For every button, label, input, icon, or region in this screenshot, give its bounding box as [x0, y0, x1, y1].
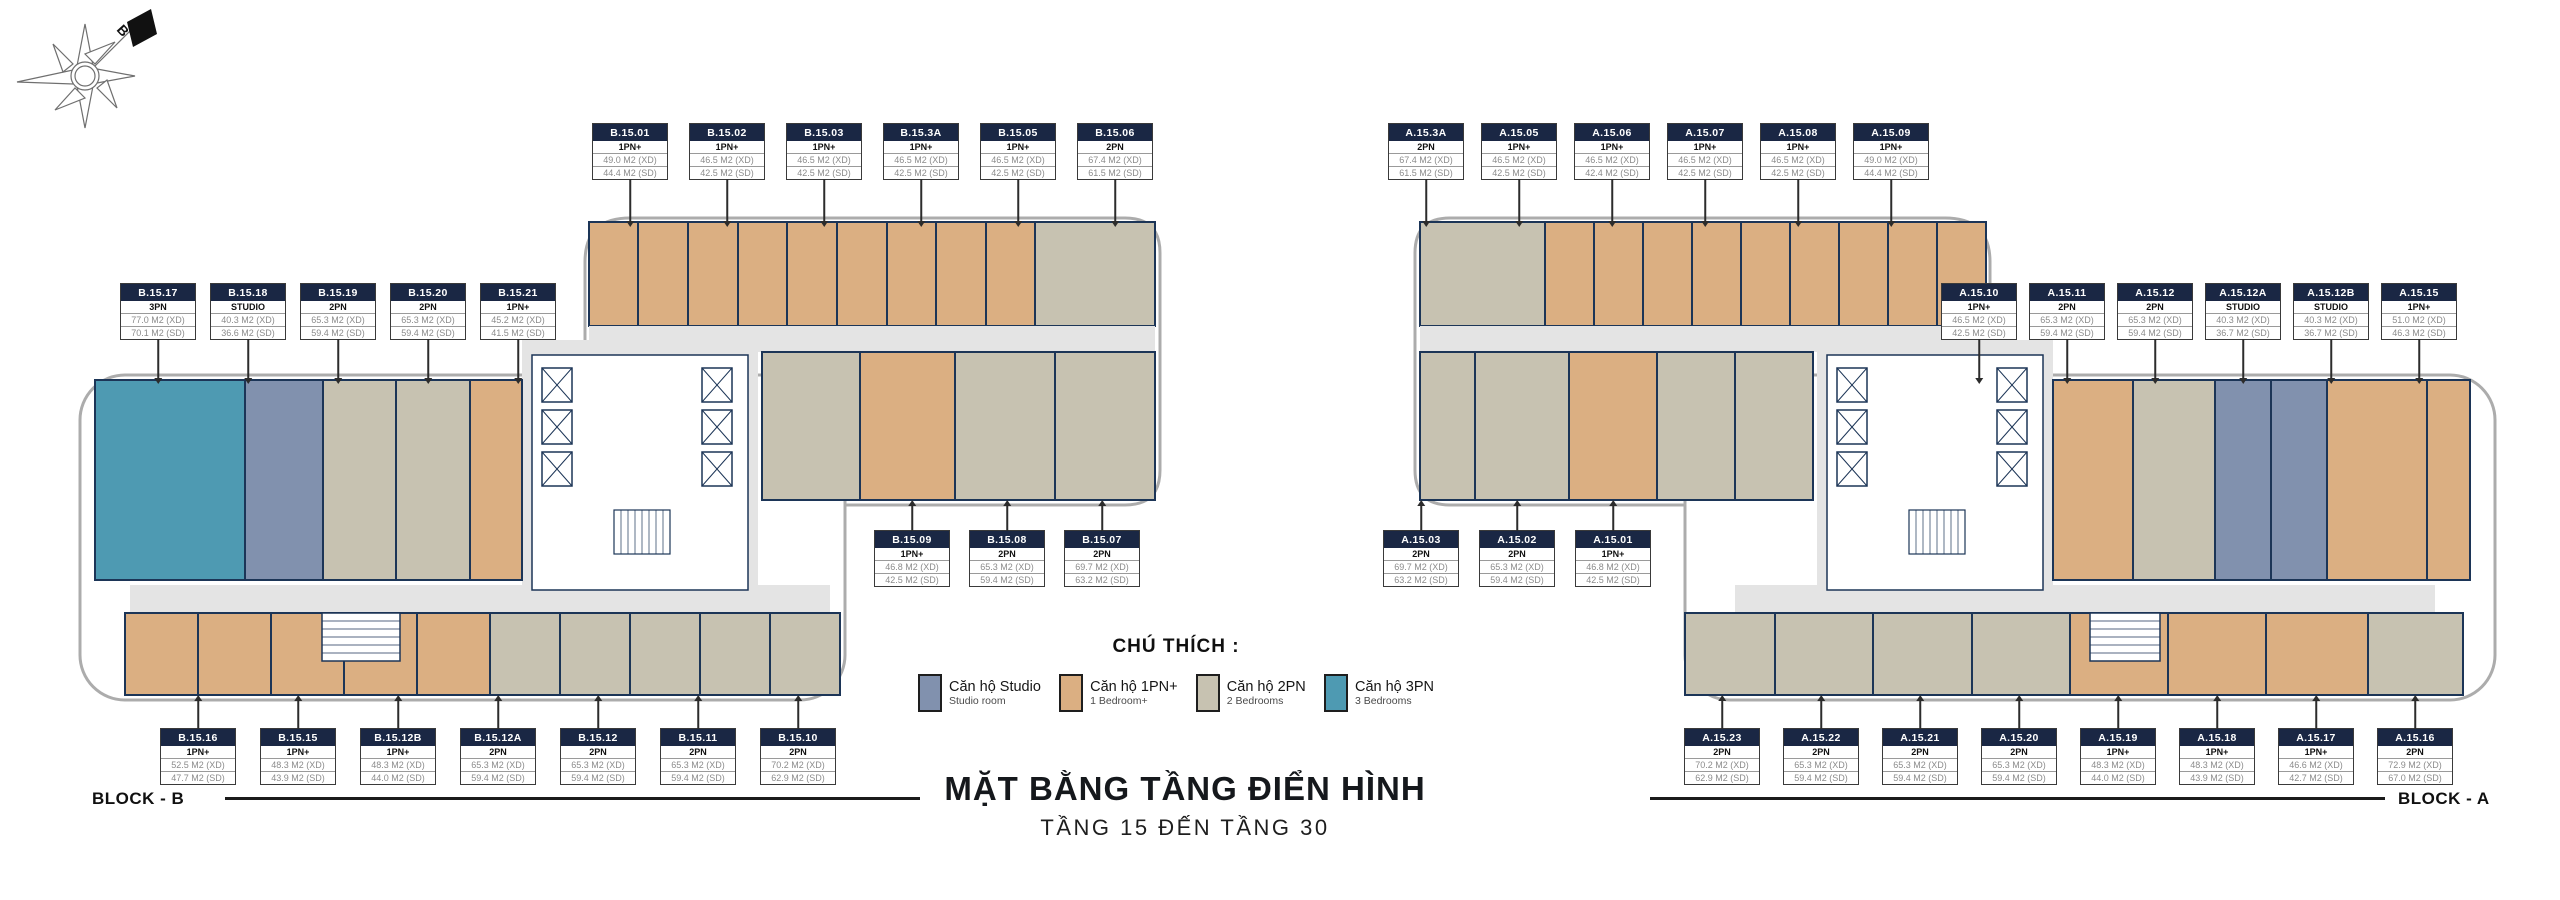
unit-area-xd: 46.5 M2 (XD)	[1942, 313, 2016, 326]
unit-area-sd: 59.4 M2 (SD)	[1883, 771, 1957, 784]
unit-id: B.15.05	[981, 124, 1055, 141]
unit-id: A.15.20	[1982, 729, 2056, 746]
unit-area-sd: 47.7 M2 (SD)	[161, 771, 235, 784]
legend-item: Căn hộ 2PN 2 Bedrooms	[1196, 674, 1306, 712]
block-a-upper-corridor	[1420, 326, 1986, 352]
callout-stem	[427, 339, 429, 378]
unit-area-sd: 59.4 M2 (SD)	[1784, 771, 1858, 784]
unit-callout: A.15.12A STUDIO 40.3 M2 (XD) 36.7 M2 (SD…	[2205, 283, 2281, 340]
unit-callout: A.15.02 2PN 65.3 M2 (XD) 59.4 M2 (SD)	[1479, 530, 1555, 587]
unit-type: 2PN	[1685, 746, 1759, 758]
unit-type: 2PN	[970, 548, 1044, 560]
block-b-upper-corridor	[589, 326, 1155, 352]
unit-callout: A.15.20 2PN 65.3 M2 (XD) 59.4 M2 (SD)	[1981, 728, 2057, 785]
unit-area-sd: 36.7 M2 (SD)	[2206, 326, 2280, 339]
unit-id: B.15.11	[661, 729, 735, 746]
unit-id: A.15.23	[1685, 729, 1759, 746]
unit-callout: A.15.06 1PN+ 46.5 M2 (XD) 42.4 M2 (SD)	[1574, 123, 1650, 180]
unit-area-sd: 36.6 M2 (SD)	[211, 326, 285, 339]
unit-id: B.15.18	[211, 284, 285, 301]
unit-type: 1PN+	[2180, 746, 2254, 758]
unit-id: A.15.3A	[1389, 124, 1463, 141]
unit-callout: A.15.12 2PN 65.3 M2 (XD) 59.4 M2 (SD)	[2117, 283, 2193, 340]
unit-area-sd: 59.4 M2 (SD)	[2118, 326, 2192, 339]
unit-callout: A.15.22 2PN 65.3 M2 (XD) 59.4 M2 (SD)	[1783, 728, 1859, 785]
unit-area-sd: 42.5 M2 (SD)	[787, 166, 861, 179]
unit-callout: B.15.11 2PN 65.3 M2 (XD) 59.4 M2 (SD)	[660, 728, 736, 785]
unit-area-sd: 43.9 M2 (SD)	[2180, 771, 2254, 784]
unit-callout: A.15.11 2PN 65.3 M2 (XD) 59.4 M2 (SD)	[2029, 283, 2105, 340]
unit-type: 1PN+	[1482, 141, 1556, 153]
unit-area-xd: 67.4 M2 (XD)	[1078, 153, 1152, 166]
legend-title: CHÚ THÍCH :	[918, 636, 1434, 658]
unit-id: B.15.02	[690, 124, 764, 141]
callout-stem	[1721, 701, 1723, 729]
unit-area-sd: 59.4 M2 (SD)	[301, 326, 375, 339]
callout-stem	[597, 701, 599, 729]
unit-type: 1PN+	[690, 141, 764, 153]
unit-area-sd: 44.0 M2 (SD)	[2081, 771, 2155, 784]
callout-stem	[1797, 179, 1799, 221]
callout-stem	[1420, 506, 1422, 531]
unit-callout: B.15.09 1PN+ 46.8 M2 (XD) 42.5 M2 (SD)	[874, 530, 950, 587]
unit-area-sd: 63.2 M2 (SD)	[1384, 573, 1458, 586]
unit-type: 2PN	[1384, 548, 1458, 560]
unit-id: A.15.01	[1576, 531, 1650, 548]
unit-type: 1PN+	[1942, 301, 2016, 313]
unit-area-sd: 44.4 M2 (SD)	[593, 166, 667, 179]
callout-stem	[2418, 339, 2420, 378]
unit-id: B.15.12A	[461, 729, 535, 746]
unit-callout: A.15.16 2PN 72.9 M2 (XD) 67.0 M2 (SD)	[2377, 728, 2453, 785]
unit-area-sd: 67.0 M2 (SD)	[2378, 771, 2452, 784]
unit-area-xd: 46.8 M2 (XD)	[1576, 560, 1650, 573]
legend-item: Căn hộ 1PN+ 1 Bedroom+	[1059, 674, 1177, 712]
callout-stem	[2018, 701, 2020, 729]
unit-id: B.15.3A	[884, 124, 958, 141]
block-a-mid-callouts: A.15.03 2PN 69.7 M2 (XD) 63.2 M2 (SD) A.…	[1383, 530, 1651, 587]
unit-type: 2PN	[2030, 301, 2104, 313]
unit-id: B.15.03	[787, 124, 861, 141]
unit-area-sd: 42.4 M2 (SD)	[1575, 166, 1649, 179]
unit-callout: A.15.09 1PN+ 49.0 M2 (XD) 44.4 M2 (SD)	[1853, 123, 1929, 180]
callout-stem	[1612, 506, 1614, 531]
block-b-elevator-core	[532, 355, 748, 590]
legend: CHÚ THÍCH : Căn hộ Studio Studio room Că…	[918, 636, 1434, 712]
callout-stem	[1425, 179, 1427, 221]
unit-area-sd: 43.9 M2 (SD)	[261, 771, 335, 784]
unit-callout: B.15.19 2PN 65.3 M2 (XD) 59.4 M2 (SD)	[300, 283, 376, 340]
callout-stem	[1820, 701, 1822, 729]
unit-id: A.15.19	[2081, 729, 2155, 746]
unit-callout: A.15.12B STUDIO 40.3 M2 (XD) 36.7 M2 (SD…	[2293, 283, 2369, 340]
unit-area-sd: 62.9 M2 (SD)	[761, 771, 835, 784]
unit-id: A.15.08	[1761, 124, 1835, 141]
callout-stem	[1919, 701, 1921, 729]
callout-stem	[2066, 339, 2068, 378]
unit-callout: A.15.18 1PN+ 48.3 M2 (XD) 43.9 M2 (SD)	[2179, 728, 2255, 785]
compass-rose-icon: B	[15, 8, 165, 133]
unit-id: B.15.08	[970, 531, 1044, 548]
unit-area-xd: 52.5 M2 (XD)	[161, 758, 235, 771]
unit-area-xd: 49.0 M2 (XD)	[593, 153, 667, 166]
unit-callout: B.15.07 2PN 69.7 M2 (XD) 63.2 M2 (SD)	[1064, 530, 1140, 587]
callout-stem	[1518, 179, 1520, 221]
unit-area-xd: 46.5 M2 (XD)	[884, 153, 958, 166]
unit-type: 1PN+	[1576, 548, 1650, 560]
legend-color-swatch	[918, 674, 942, 712]
unit-type: 2PN	[1078, 141, 1152, 153]
unit-id: B.15.19	[301, 284, 375, 301]
unit-area-xd: 77.0 M2 (XD)	[121, 313, 195, 326]
unit-callout: A.15.15 1PN+ 51.0 M2 (XD) 46.3 M2 (SD)	[2381, 283, 2457, 340]
unit-area-sd: 62.9 M2 (SD)	[1685, 771, 1759, 784]
legend-color-swatch	[1059, 674, 1083, 712]
unit-id: A.15.16	[2378, 729, 2452, 746]
unit-type: 2PN	[1883, 746, 1957, 758]
legend-color-swatch	[1324, 674, 1348, 712]
callout-stem	[2154, 339, 2156, 378]
unit-type: 2PN	[761, 746, 835, 758]
unit-area-xd: 46.8 M2 (XD)	[875, 560, 949, 573]
callout-stem	[517, 339, 519, 378]
callout-stem	[1114, 179, 1116, 221]
unit-callout: B.15.05 1PN+ 46.5 M2 (XD) 42.5 M2 (SD)	[980, 123, 1056, 180]
unit-callout: B.15.17 3PN 77.0 M2 (XD) 70.1 M2 (SD)	[120, 283, 196, 340]
unit-area-sd: 42.5 M2 (SD)	[875, 573, 949, 586]
callout-stem	[2117, 701, 2119, 729]
unit-area-xd: 69.7 M2 (XD)	[1384, 560, 1458, 573]
callout-stem	[337, 339, 339, 378]
block-b-bottom-callouts: B.15.16 1PN+ 52.5 M2 (XD) 47.7 M2 (SD) B…	[160, 728, 836, 785]
legend-item-name: Căn hộ Studio	[949, 679, 1041, 696]
unit-area-sd: 42.5 M2 (SD)	[981, 166, 1055, 179]
unit-callout: A.15.05 1PN+ 46.5 M2 (XD) 42.5 M2 (SD)	[1481, 123, 1557, 180]
unit-area-xd: 40.3 M2 (XD)	[211, 313, 285, 326]
unit-area-sd: 59.4 M2 (SD)	[1982, 771, 2056, 784]
unit-callout: A.15.17 1PN+ 46.6 M2 (XD) 42.7 M2 (SD)	[2278, 728, 2354, 785]
unit-area-xd: 48.3 M2 (XD)	[2081, 758, 2155, 771]
block-b-mid-callouts: B.15.09 1PN+ 46.8 M2 (XD) 42.5 M2 (SD) B…	[874, 530, 1140, 587]
callout-stem	[1978, 339, 1980, 378]
unit-area-sd: 44.4 M2 (SD)	[1854, 166, 1928, 179]
unit-area-xd: 46.5 M2 (XD)	[787, 153, 861, 166]
unit-area-xd: 40.3 M2 (XD)	[2206, 313, 2280, 326]
unit-id: A.15.06	[1575, 124, 1649, 141]
unit-callout: B.15.08 2PN 65.3 M2 (XD) 59.4 M2 (SD)	[969, 530, 1045, 587]
unit-callout: B.15.01 1PN+ 49.0 M2 (XD) 44.4 M2 (SD)	[592, 123, 668, 180]
unit-area-xd: 69.7 M2 (XD)	[1065, 560, 1139, 573]
unit-id: B.15.09	[875, 531, 949, 548]
callout-stem	[629, 179, 631, 221]
block-a-underline	[1650, 797, 2385, 800]
unit-callout: B.15.20 2PN 65.3 M2 (XD) 59.4 M2 (SD)	[390, 283, 466, 340]
unit-area-sd: 42.5 M2 (SD)	[1482, 166, 1556, 179]
callout-stem	[697, 701, 699, 729]
unit-callout: A.15.03 2PN 69.7 M2 (XD) 63.2 M2 (SD)	[1383, 530, 1459, 587]
unit-id: B.15.17	[121, 284, 195, 301]
unit-id: A.15.15	[2382, 284, 2456, 301]
unit-type: 1PN+	[1854, 141, 1928, 153]
unit-area-sd: 59.4 M2 (SD)	[970, 573, 1044, 586]
unit-id: A.15.07	[1668, 124, 1742, 141]
callout-stem	[197, 701, 199, 729]
legend-item-subtext: 1 Bedroom+	[1090, 695, 1177, 707]
unit-id: A.15.05	[1482, 124, 1556, 141]
unit-area-xd: 65.3 M2 (XD)	[1982, 758, 2056, 771]
unit-area-sd: 42.7 M2 (SD)	[2279, 771, 2353, 784]
unit-type: 1PN+	[481, 301, 555, 313]
unit-callout: B.15.12A 2PN 65.3 M2 (XD) 59.4 M2 (SD)	[460, 728, 536, 785]
unit-area-sd: 63.2 M2 (SD)	[1065, 573, 1139, 586]
unit-id: B.15.20	[391, 284, 465, 301]
unit-type: 2PN	[1982, 746, 2056, 758]
unit-id: A.15.22	[1784, 729, 1858, 746]
unit-type: STUDIO	[2206, 301, 2280, 313]
unit-area-xd: 65.3 M2 (XD)	[1883, 758, 1957, 771]
unit-callout: B.15.03 1PN+ 46.5 M2 (XD) 42.5 M2 (SD)	[786, 123, 862, 180]
unit-area-xd: 70.2 M2 (XD)	[761, 758, 835, 771]
unit-area-xd: 65.3 M2 (XD)	[2030, 313, 2104, 326]
legend-item-name: Căn hộ 3PN	[1355, 679, 1434, 696]
unit-type: 2PN	[301, 301, 375, 313]
unit-type: 1PN+	[1668, 141, 1742, 153]
unit-area-sd: 59.4 M2 (SD)	[461, 771, 535, 784]
callout-stem	[911, 506, 913, 531]
unit-id: A.15.02	[1480, 531, 1554, 548]
block-b-underline	[225, 797, 920, 800]
unit-area-xd: 46.6 M2 (XD)	[2279, 758, 2353, 771]
unit-area-xd: 65.3 M2 (XD)	[1480, 560, 1554, 573]
unit-type: 1PN+	[1761, 141, 1835, 153]
unit-area-sd: 41.5 M2 (SD)	[481, 326, 555, 339]
unit-area-sd: 42.5 M2 (SD)	[884, 166, 958, 179]
unit-area-sd: 36.7 M2 (SD)	[2294, 326, 2368, 339]
callout-stem	[1101, 506, 1103, 531]
legend-item: Căn hộ 3PN 3 Bedrooms	[1324, 674, 1434, 712]
unit-callout: B.15.12 2PN 65.3 M2 (XD) 59.4 M2 (SD)	[560, 728, 636, 785]
unit-area-xd: 45.2 M2 (XD)	[481, 313, 555, 326]
unit-callout: B.15.15 1PN+ 48.3 M2 (XD) 43.9 M2 (SD)	[260, 728, 336, 785]
unit-type: 2PN	[2118, 301, 2192, 313]
unit-area-xd: 46.5 M2 (XD)	[690, 153, 764, 166]
unit-type: 2PN	[461, 746, 535, 758]
unit-callout: B.15.06 2PN 67.4 M2 (XD) 61.5 M2 (SD)	[1077, 123, 1153, 180]
unit-area-xd: 46.5 M2 (XD)	[981, 153, 1055, 166]
unit-area-sd: 59.4 M2 (SD)	[1480, 573, 1554, 586]
block-a-bottom-callouts: A.15.23 2PN 70.2 M2 (XD) 62.9 M2 (SD) A.…	[1684, 728, 2453, 785]
unit-id: B.15.12	[561, 729, 635, 746]
unit-type: 1PN+	[981, 141, 1055, 153]
unit-callout: A.15.23 2PN 70.2 M2 (XD) 62.9 M2 (SD)	[1684, 728, 1760, 785]
unit-callout: B.15.16 1PN+ 52.5 M2 (XD) 47.7 M2 (SD)	[160, 728, 236, 785]
unit-type: STUDIO	[2294, 301, 2368, 313]
unit-callout: B.15.3A 1PN+ 46.5 M2 (XD) 42.5 M2 (SD)	[883, 123, 959, 180]
unit-callout: A.15.10 1PN+ 46.5 M2 (XD) 42.5 M2 (SD)	[1941, 283, 2017, 340]
unit-callout: A.15.19 1PN+ 48.3 M2 (XD) 44.0 M2 (SD)	[2080, 728, 2156, 785]
unit-area-xd: 65.3 M2 (XD)	[301, 313, 375, 326]
unit-area-xd: 70.2 M2 (XD)	[1685, 758, 1759, 771]
callout-stem	[920, 179, 922, 221]
page-subtitle: TẦNG 15 ĐẾN TẦNG 30	[935, 815, 1435, 841]
unit-type: STUDIO	[211, 301, 285, 313]
unit-type: 1PN+	[884, 141, 958, 153]
callout-stem	[797, 701, 799, 729]
unit-callout: B.15.12B 1PN+ 48.3 M2 (XD) 44.0 M2 (SD)	[360, 728, 436, 785]
unit-area-xd: 72.9 M2 (XD)	[2378, 758, 2452, 771]
unit-id: B.15.01	[593, 124, 667, 141]
unit-type: 2PN	[561, 746, 635, 758]
legend-item-name: Căn hộ 2PN	[1227, 679, 1306, 696]
unit-area-xd: 48.3 M2 (XD)	[361, 758, 435, 771]
unit-callout: A.15.08 1PN+ 46.5 M2 (XD) 42.5 M2 (SD)	[1760, 123, 1836, 180]
unit-area-xd: 65.3 M2 (XD)	[561, 758, 635, 771]
unit-area-sd: 42.5 M2 (SD)	[690, 166, 764, 179]
unit-area-xd: 46.5 M2 (XD)	[1482, 153, 1556, 166]
legend-item-name: Căn hộ 1PN+	[1090, 679, 1177, 696]
unit-id: A.15.21	[1883, 729, 1957, 746]
unit-id: A.15.12	[2118, 284, 2192, 301]
unit-area-xd: 65.3 M2 (XD)	[461, 758, 535, 771]
unit-area-sd: 70.1 M2 (SD)	[121, 326, 195, 339]
legend-item: Căn hộ Studio Studio room	[918, 674, 1041, 712]
page-title: MẶT BẰNG TẦNG ĐIỂN HÌNH	[935, 770, 1435, 808]
unit-area-sd: 42.5 M2 (SD)	[1942, 326, 2016, 339]
unit-area-xd: 51.0 M2 (XD)	[2382, 313, 2456, 326]
unit-area-sd: 46.3 M2 (SD)	[2382, 326, 2456, 339]
unit-callout: A.15.3A 2PN 67.4 M2 (XD) 61.5 M2 (SD)	[1388, 123, 1464, 180]
unit-area-xd: 40.3 M2 (XD)	[2294, 313, 2368, 326]
unit-area-xd: 48.3 M2 (XD)	[261, 758, 335, 771]
block-b-left-callouts: B.15.17 3PN 77.0 M2 (XD) 70.1 M2 (SD) B.…	[120, 283, 556, 340]
unit-area-xd: 65.3 M2 (XD)	[661, 758, 735, 771]
callout-stem	[157, 339, 159, 378]
callout-stem	[2242, 339, 2244, 378]
unit-area-xd: 49.0 M2 (XD)	[1854, 153, 1928, 166]
callout-stem	[2414, 701, 2416, 729]
unit-id: B.15.21	[481, 284, 555, 301]
callout-stem	[297, 701, 299, 729]
block-b-label: BLOCK - B	[92, 789, 184, 809]
unit-id: B.15.10	[761, 729, 835, 746]
unit-callout: A.15.01 1PN+ 46.8 M2 (XD) 42.5 M2 (SD)	[1575, 530, 1651, 587]
callout-stem	[247, 339, 249, 378]
unit-id: A.15.03	[1384, 531, 1458, 548]
callout-stem	[2216, 701, 2218, 729]
unit-type: 2PN	[1389, 141, 1463, 153]
unit-callout: A.15.21 2PN 65.3 M2 (XD) 59.4 M2 (SD)	[1882, 728, 1958, 785]
unit-area-sd: 61.5 M2 (SD)	[1389, 166, 1463, 179]
unit-type: 1PN+	[2081, 746, 2155, 758]
unit-type: 1PN+	[361, 746, 435, 758]
unit-callout: B.15.10 2PN 70.2 M2 (XD) 62.9 M2 (SD)	[760, 728, 836, 785]
unit-area-sd: 59.4 M2 (SD)	[2030, 326, 2104, 339]
callout-stem	[1704, 179, 1706, 221]
unit-type: 1PN+	[2382, 301, 2456, 313]
unit-id: A.15.17	[2279, 729, 2353, 746]
callout-stem	[1017, 179, 1019, 221]
unit-callout: B.15.18 STUDIO 40.3 M2 (XD) 36.6 M2 (SD)	[210, 283, 286, 340]
floor-plan-canvas: B	[0, 0, 2560, 900]
unit-type: 1PN+	[787, 141, 861, 153]
unit-callout: B.15.21 1PN+ 45.2 M2 (XD) 41.5 M2 (SD)	[480, 283, 556, 340]
unit-type: 2PN	[1065, 548, 1139, 560]
unit-area-sd: 61.5 M2 (SD)	[1078, 166, 1152, 179]
callout-stem	[2315, 701, 2317, 729]
unit-type: 1PN+	[261, 746, 335, 758]
unit-area-xd: 67.4 M2 (XD)	[1389, 153, 1463, 166]
unit-type: 1PN+	[593, 141, 667, 153]
unit-callout: B.15.02 1PN+ 46.5 M2 (XD) 42.5 M2 (SD)	[689, 123, 765, 180]
unit-area-xd: 65.3 M2 (XD)	[1784, 758, 1858, 771]
legend-item-subtext: 2 Bedrooms	[1227, 695, 1306, 707]
callout-stem	[397, 701, 399, 729]
unit-area-xd: 48.3 M2 (XD)	[2180, 758, 2254, 771]
unit-area-sd: 59.4 M2 (SD)	[561, 771, 635, 784]
block-a-elevator-core	[1827, 355, 2043, 590]
block-a-label: BLOCK - A	[2398, 789, 2490, 809]
unit-type: 1PN+	[161, 746, 235, 758]
unit-area-sd: 42.5 M2 (SD)	[1668, 166, 1742, 179]
unit-type: 2PN	[1784, 746, 1858, 758]
unit-type: 1PN+	[1575, 141, 1649, 153]
unit-id: A.15.12B	[2294, 284, 2368, 301]
unit-id: A.15.09	[1854, 124, 1928, 141]
legend-item-subtext: 3 Bedrooms	[1355, 695, 1434, 707]
callout-stem	[497, 701, 499, 729]
unit-area-xd: 65.3 M2 (XD)	[2118, 313, 2192, 326]
legend-item-subtext: Studio room	[949, 695, 1041, 707]
callout-stem	[1611, 179, 1613, 221]
unit-id: B.15.16	[161, 729, 235, 746]
block-a-right-callouts: A.15.10 1PN+ 46.5 M2 (XD) 42.5 M2 (SD) A…	[1941, 283, 2457, 340]
unit-callout: A.15.07 1PN+ 46.5 M2 (XD) 42.5 M2 (SD)	[1667, 123, 1743, 180]
unit-id: A.15.11	[2030, 284, 2104, 301]
unit-type: 2PN	[661, 746, 735, 758]
unit-type: 3PN	[121, 301, 195, 313]
block-a-top-callouts: A.15.3A 2PN 67.4 M2 (XD) 61.5 M2 (SD) A.…	[1388, 123, 1929, 180]
legend-items: Căn hộ Studio Studio room Căn hộ 1PN+ 1 …	[918, 674, 1434, 712]
unit-area-xd: 46.5 M2 (XD)	[1761, 153, 1835, 166]
block-b-top-callouts: B.15.01 1PN+ 49.0 M2 (XD) 44.4 M2 (SD) B…	[592, 123, 1153, 180]
unit-id: A.15.18	[2180, 729, 2254, 746]
callout-stem	[1890, 179, 1892, 221]
legend-color-swatch	[1196, 674, 1220, 712]
unit-type: 2PN	[1480, 548, 1554, 560]
unit-id: B.15.06	[1078, 124, 1152, 141]
unit-type: 1PN+	[2279, 746, 2353, 758]
unit-area-sd: 59.4 M2 (SD)	[391, 326, 465, 339]
callout-stem	[726, 179, 728, 221]
unit-id: B.15.12B	[361, 729, 435, 746]
callout-stem	[1516, 506, 1518, 531]
unit-type: 1PN+	[875, 548, 949, 560]
unit-area-xd: 46.5 M2 (XD)	[1575, 153, 1649, 166]
unit-id: A.15.12A	[2206, 284, 2280, 301]
unit-type: 2PN	[2378, 746, 2452, 758]
callout-stem	[1006, 506, 1008, 531]
unit-area-xd: 65.3 M2 (XD)	[970, 560, 1044, 573]
unit-area-sd: 42.5 M2 (SD)	[1576, 573, 1650, 586]
unit-area-sd: 42.5 M2 (SD)	[1761, 166, 1835, 179]
page-title-block: MẶT BẰNG TẦNG ĐIỂN HÌNH TẦNG 15 ĐẾN TẦNG…	[935, 770, 1435, 841]
block-a-floorplan	[1385, 200, 2505, 720]
unit-id: B.15.07	[1065, 531, 1139, 548]
unit-area-sd: 59.4 M2 (SD)	[661, 771, 735, 784]
unit-type: 2PN	[391, 301, 465, 313]
callout-stem	[2330, 339, 2332, 378]
unit-id: A.15.10	[1942, 284, 2016, 301]
